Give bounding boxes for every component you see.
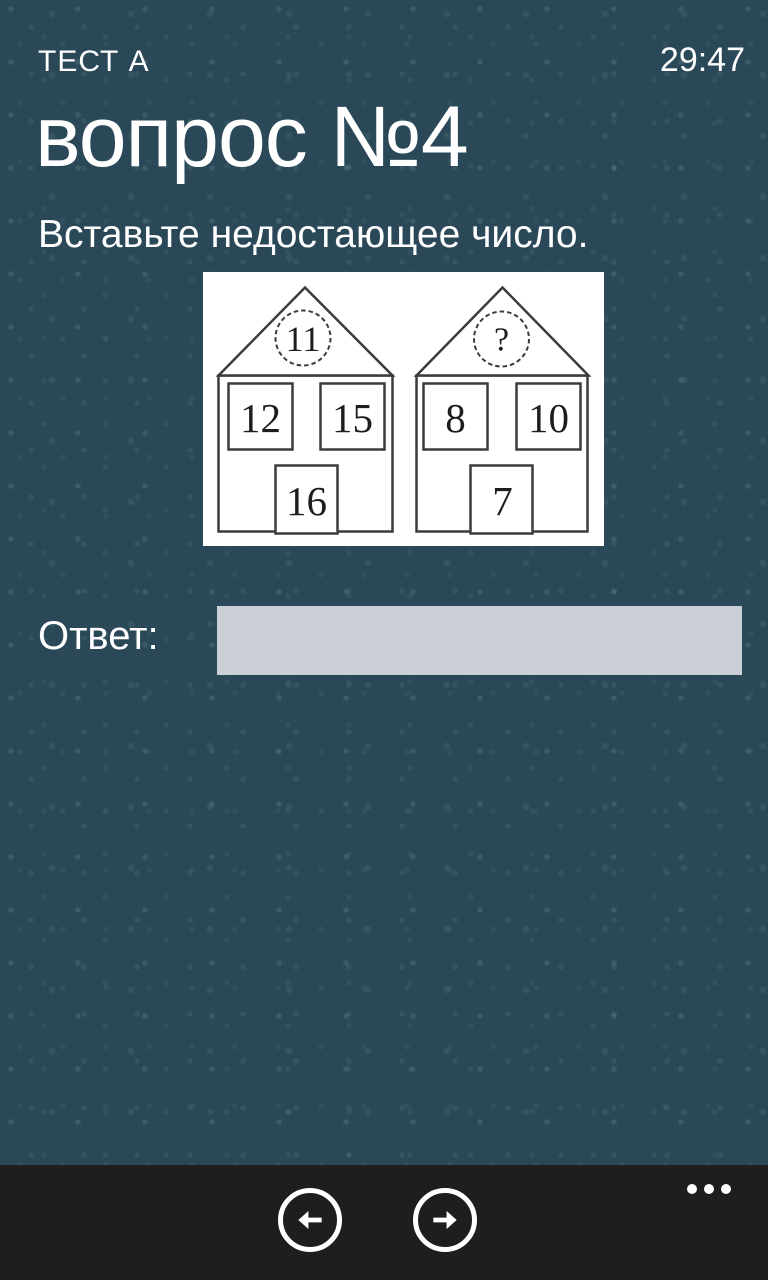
- ellipsis-dot: [721, 1184, 731, 1194]
- phone-screen: ТЕСТ А 29:47 вопрос №4 Вставьте недостаю…: [0, 0, 768, 1280]
- house-1-top-left-value: 12: [240, 395, 281, 441]
- next-question-button[interactable]: [413, 1188, 477, 1252]
- more-options-button[interactable]: [687, 1184, 731, 1194]
- countdown-timer: 29:47: [660, 41, 745, 80]
- house-1-top-right-value: 15: [332, 395, 373, 441]
- house-2-bottom-value: 7: [492, 478, 513, 524]
- house-2-roof-value: ?: [494, 322, 509, 359]
- ellipsis-dot: [704, 1184, 714, 1194]
- ellipsis-dot: [687, 1184, 697, 1194]
- arrow-right-icon: [428, 1203, 462, 1237]
- house-2-top-right-value: 10: [528, 395, 569, 441]
- house-1-bottom-value: 16: [286, 478, 327, 524]
- question-instruction: Вставьте недостающее число.: [38, 213, 588, 257]
- house-1-roof-value: 11: [286, 319, 321, 359]
- app-title: ТЕСТ А: [38, 45, 150, 79]
- houses-puzzle-image: 11 12 15 16 ? 8 10 7: [203, 272, 604, 546]
- answer-label: Ответ:: [38, 614, 159, 659]
- app-bar: [0, 1165, 768, 1280]
- page-title: вопрос №4: [35, 90, 468, 185]
- previous-question-button[interactable]: [278, 1188, 342, 1252]
- arrow-left-icon: [293, 1203, 327, 1237]
- puzzle-figure: 11 12 15 16 ? 8 10 7: [203, 272, 604, 546]
- answer-input[interactable]: [217, 606, 742, 675]
- house-2-top-left-value: 8: [445, 395, 466, 441]
